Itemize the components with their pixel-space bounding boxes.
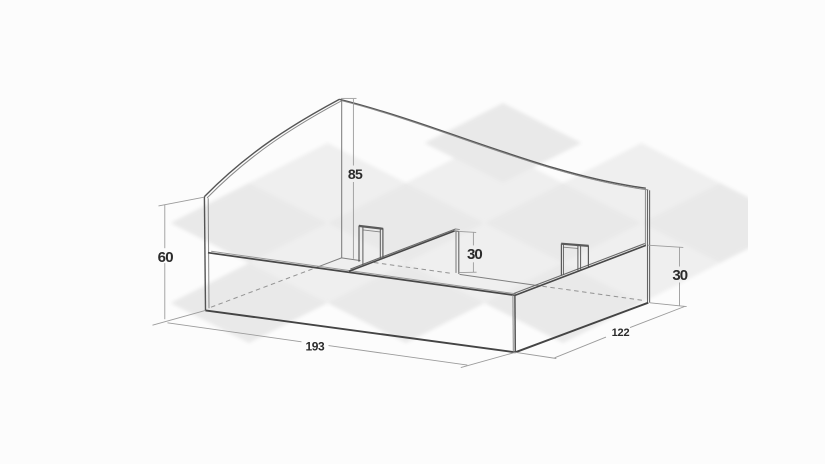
svg-text:85: 85 xyxy=(348,166,363,182)
svg-text:30: 30 xyxy=(467,246,482,263)
svg-text:193: 193 xyxy=(305,340,325,354)
svg-text:122: 122 xyxy=(612,327,630,339)
svg-text:30: 30 xyxy=(672,267,687,284)
svg-text:60: 60 xyxy=(158,249,174,266)
